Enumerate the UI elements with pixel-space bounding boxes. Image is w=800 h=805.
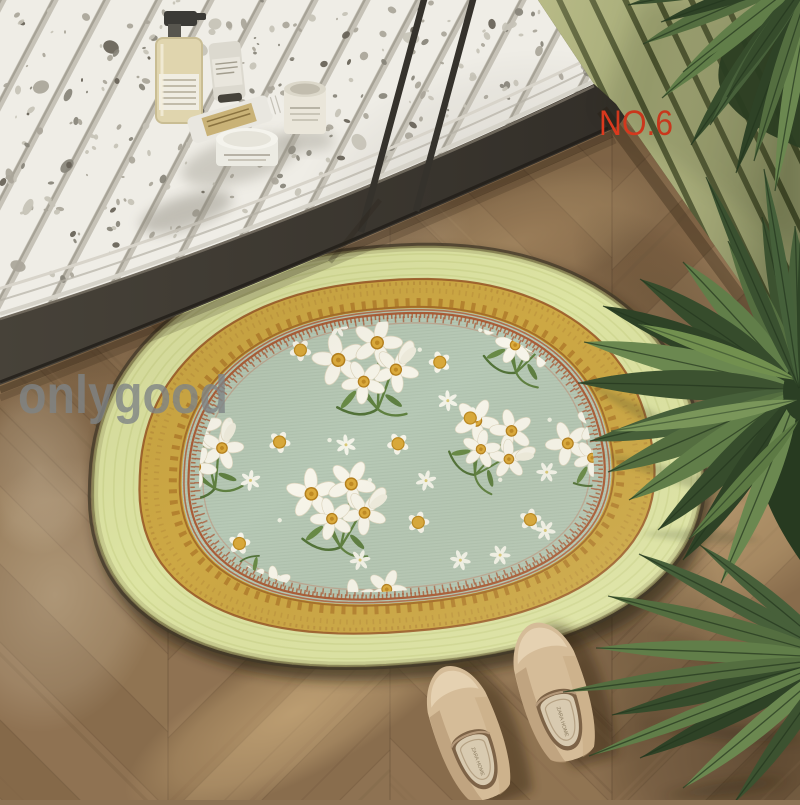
svg-text:onlygood: onlygood	[18, 365, 228, 425]
